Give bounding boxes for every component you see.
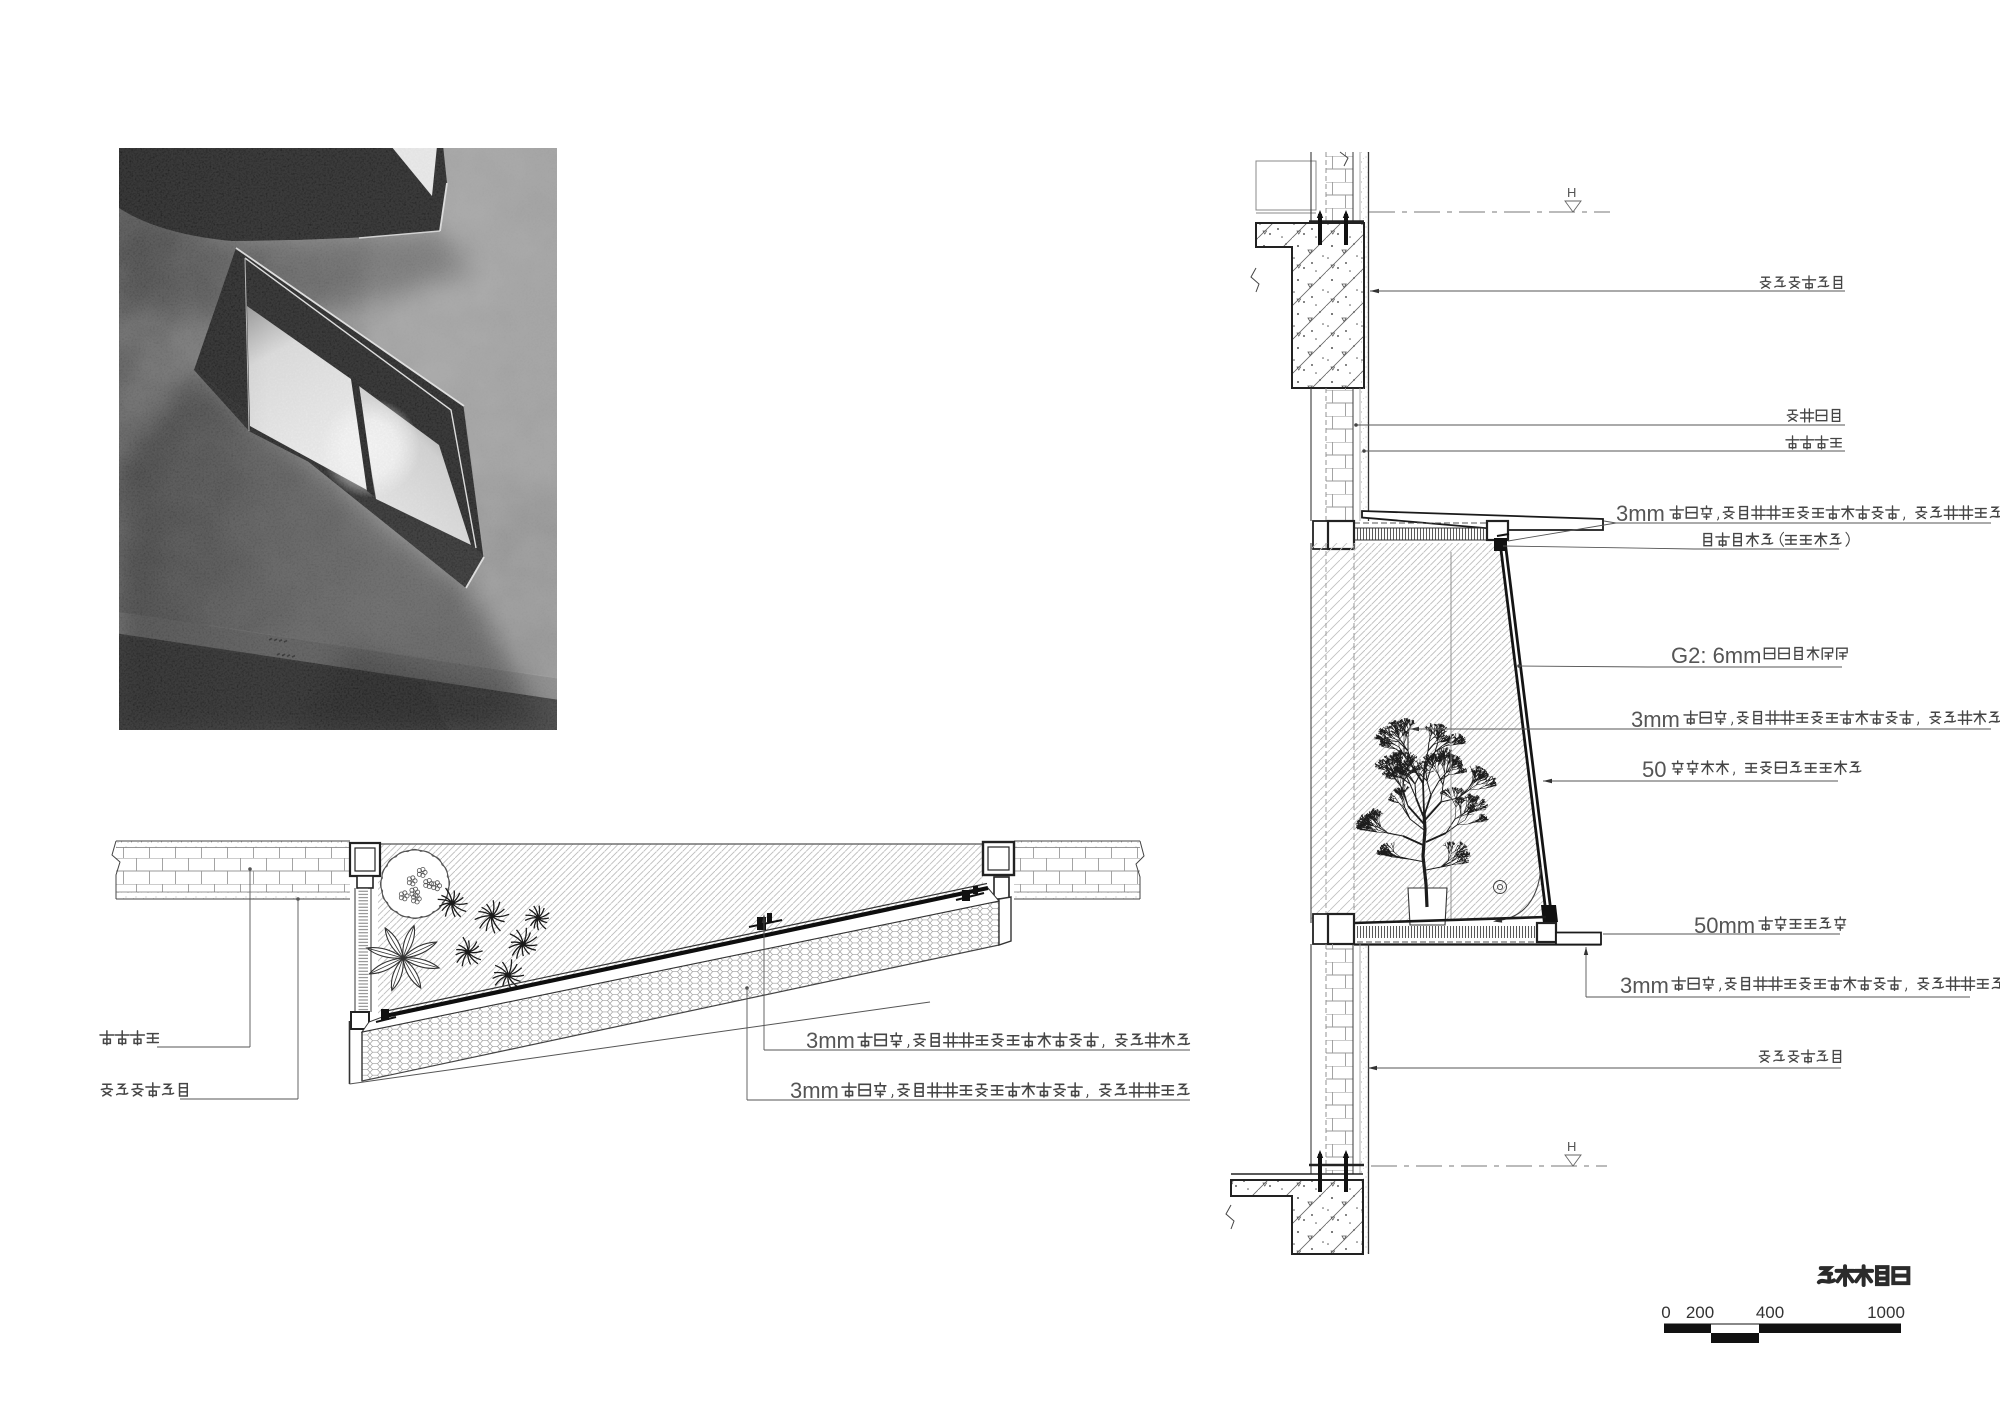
svg-text:1000: 1000 bbox=[1867, 1303, 1905, 1322]
svg-text:G2: 6mm: G2: 6mm bbox=[1671, 643, 1761, 668]
svg-text:400: 400 bbox=[1756, 1303, 1784, 1322]
svg-text:H: H bbox=[1567, 1139, 1576, 1154]
svg-text:3mm: 3mm bbox=[1616, 501, 1665, 526]
svg-text:3mm: 3mm bbox=[806, 1028, 855, 1053]
svg-text:H: H bbox=[1567, 185, 1576, 200]
svg-text:3mm: 3mm bbox=[1631, 707, 1680, 732]
svg-text:3mm: 3mm bbox=[1620, 973, 1669, 998]
svg-text:50: 50 bbox=[1642, 757, 1666, 782]
svg-text:0: 0 bbox=[1661, 1303, 1670, 1322]
svg-text:200: 200 bbox=[1686, 1303, 1714, 1322]
svg-text:3mm: 3mm bbox=[790, 1078, 839, 1103]
